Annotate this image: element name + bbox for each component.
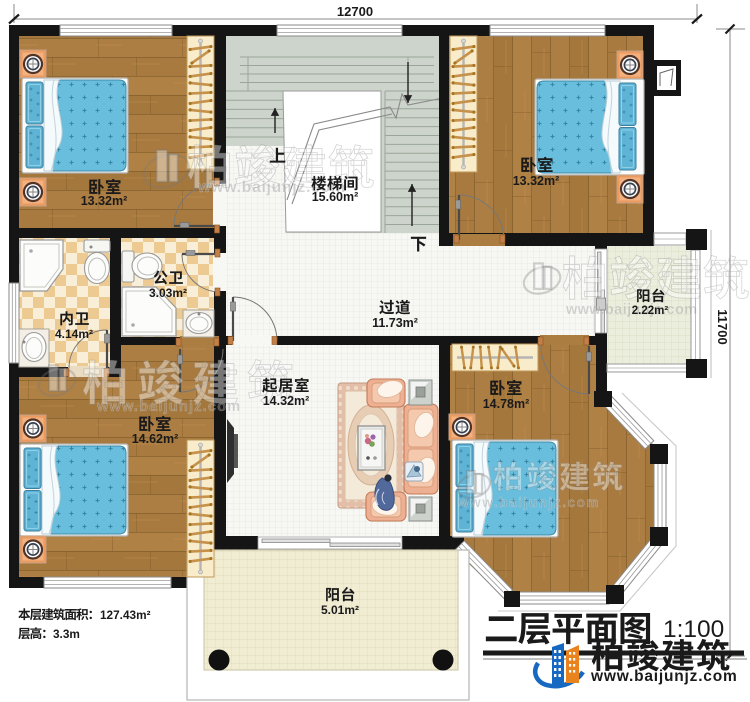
svg-text:www.baijunjz.com: www.baijunjz.com — [590, 668, 738, 685]
svg-text:4.14m²: 4.14m² — [55, 327, 93, 341]
svg-text:11.73m²: 11.73m² — [372, 316, 418, 330]
svg-text:1:100: 1:100 — [663, 616, 724, 643]
svg-text:2.22m²: 2.22m² — [632, 305, 669, 317]
svg-text:5.01m²: 5.01m² — [321, 603, 359, 617]
svg-text:3.03m²: 3.03m² — [149, 286, 187, 300]
svg-text:12700: 12700 — [337, 4, 373, 19]
svg-text:14.32m²: 14.32m² — [263, 394, 310, 408]
svg-text:www.baijunjz.com: www.baijunjz.com — [457, 495, 600, 510]
svg-text:14.78m²: 14.78m² — [483, 397, 530, 411]
svg-text:15.60m²: 15.60m² — [312, 190, 359, 204]
svg-text:11700: 11700 — [715, 309, 730, 344]
svg-text:14.62m²: 14.62m² — [132, 432, 179, 446]
svg-text:www.baijunjz.com: www.baijunjz.com — [96, 399, 241, 415]
svg-text:13.32m²: 13.32m² — [81, 194, 128, 208]
svg-text:13.32m²: 13.32m² — [513, 174, 560, 188]
svg-text:3.3m: 3.3m — [53, 627, 80, 641]
svg-text:127.43m²: 127.43m² — [100, 608, 151, 622]
